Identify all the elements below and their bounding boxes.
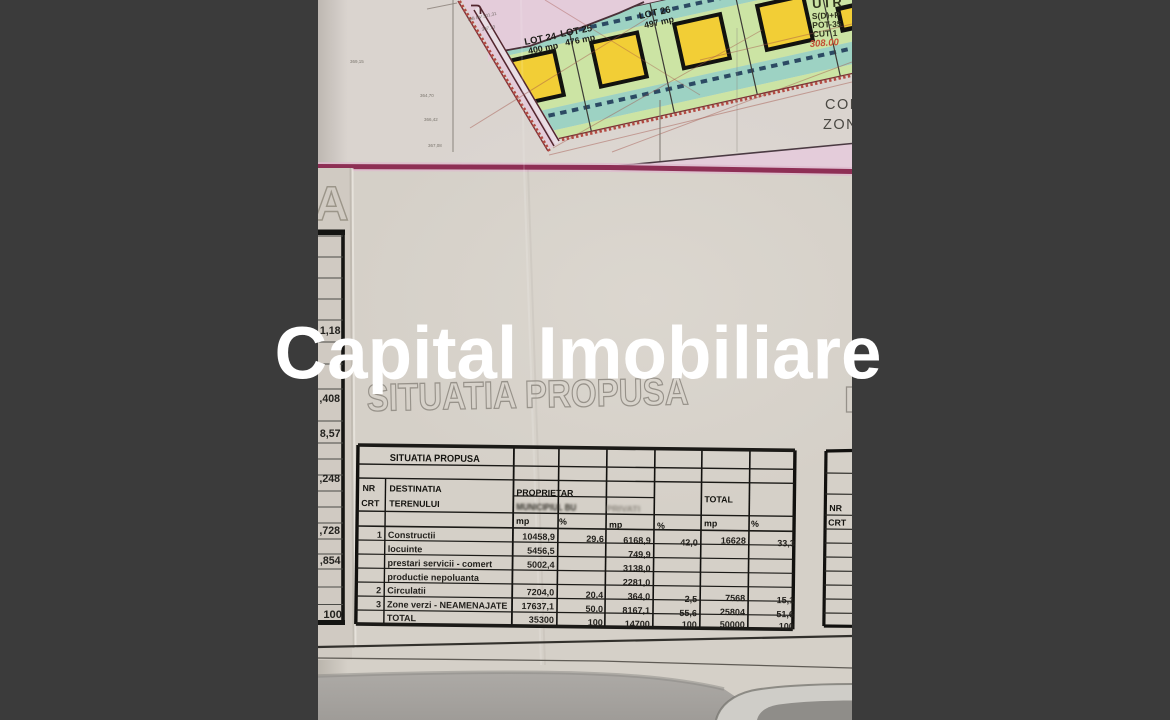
svg-text:100: 100	[588, 617, 603, 627]
svg-text:10458,9: 10458,9	[522, 532, 555, 542]
svg-text:8,57: 8,57	[320, 428, 341, 440]
svg-text:Circulatii: Circulatii	[387, 585, 426, 595]
svg-text:17637,1: 17637,1	[521, 601, 554, 611]
svg-text:Constructii: Constructii	[388, 530, 436, 541]
svg-text:locuinte: locuinte	[388, 544, 423, 554]
svg-text:364,0: 364,0	[628, 591, 651, 601]
svg-text:7204,0: 7204,0	[527, 587, 555, 597]
svg-text:42,0: 42,0	[680, 537, 698, 547]
svg-text:TOTAL: TOTAL	[704, 494, 733, 504]
svg-text:,408: ,408	[319, 393, 340, 405]
svg-text:50,0: 50,0	[585, 604, 603, 614]
svg-text:Capital Imobiliare: Capital Imobiliare	[275, 312, 882, 395]
svg-text:TERENULUI: TERENULUI	[389, 498, 439, 509]
svg-text:50000: 50000	[720, 619, 745, 629]
svg-text:NR: NR	[362, 483, 375, 493]
svg-text:364,70: 364,70	[420, 93, 434, 98]
svg-text:749,9: 749,9	[628, 549, 651, 559]
svg-text:367,08: 367,08	[428, 143, 442, 148]
svg-text:55,6: 55,6	[679, 608, 697, 618]
svg-text:SITUATIA PROPUSA: SITUATIA PROPUSA	[390, 453, 480, 465]
svg-text:2: 2	[376, 585, 381, 595]
svg-text:productie nepoluanta: productie nepoluanta	[387, 572, 480, 583]
svg-text:29,6: 29,6	[586, 534, 604, 544]
svg-text:6168,9: 6168,9	[623, 535, 651, 545]
svg-text:PRIVATI: PRIVATI	[606, 504, 640, 514]
svg-text:%: %	[751, 519, 759, 529]
svg-text:,728: ,728	[319, 525, 340, 537]
svg-text:3138,0: 3138,0	[623, 563, 651, 573]
svg-text:14700: 14700	[625, 619, 650, 629]
svg-text:CRT: CRT	[828, 518, 847, 528]
svg-text:mp: mp	[609, 520, 623, 530]
svg-text:51,6: 51,6	[776, 609, 794, 619]
svg-text:100: 100	[682, 619, 697, 629]
svg-text:1: 1	[377, 530, 382, 540]
svg-text:16628: 16628	[721, 535, 746, 545]
svg-text:35300: 35300	[529, 615, 554, 625]
svg-text:mp: mp	[516, 516, 530, 526]
svg-text:25804: 25804	[720, 607, 745, 617]
svg-text:369,15: 369,15	[350, 59, 364, 64]
svg-text:MUNICIPIUL BU: MUNICIPIUL BU	[516, 502, 576, 513]
svg-text:7568: 7568	[725, 593, 745, 603]
svg-text:DESTINATIA: DESTINATIA	[389, 483, 442, 494]
svg-text:308.00: 308.00	[809, 37, 839, 50]
svg-text:Zone verzi - NEAMENAJATE: Zone verzi - NEAMENAJATE	[387, 599, 507, 610]
svg-text:,248: ,248	[319, 473, 340, 485]
svg-text:%: %	[559, 516, 567, 526]
svg-text:5002,4: 5002,4	[527, 560, 555, 570]
svg-text:5456,5: 5456,5	[527, 546, 555, 556]
svg-text:,854: ,854	[320, 555, 341, 567]
svg-text:NR: NR	[829, 503, 842, 513]
svg-text:33,3: 33,3	[777, 538, 795, 548]
svg-text:20,4: 20,4	[586, 590, 604, 600]
svg-text:100: 100	[779, 621, 794, 631]
svg-text:2281,0: 2281,0	[623, 577, 651, 587]
svg-text:2,5: 2,5	[685, 594, 698, 604]
svg-text:TOTAL: TOTAL	[387, 613, 417, 623]
svg-text:100: 100	[323, 609, 342, 621]
svg-text:%: %	[657, 521, 665, 531]
svg-text:8167,1: 8167,1	[622, 605, 650, 615]
svg-text:PROPRIETAR: PROPRIETAR	[516, 487, 574, 498]
svg-text:A: A	[314, 178, 349, 231]
svg-text:366,42: 366,42	[424, 117, 438, 122]
svg-text:15,1: 15,1	[777, 595, 795, 605]
svg-text:CRT: CRT	[361, 498, 380, 508]
svg-text:prestari servicii - comert: prestari servicii - comert	[388, 558, 493, 569]
svg-text:3: 3	[376, 599, 381, 609]
svg-text:mp: mp	[704, 518, 718, 528]
